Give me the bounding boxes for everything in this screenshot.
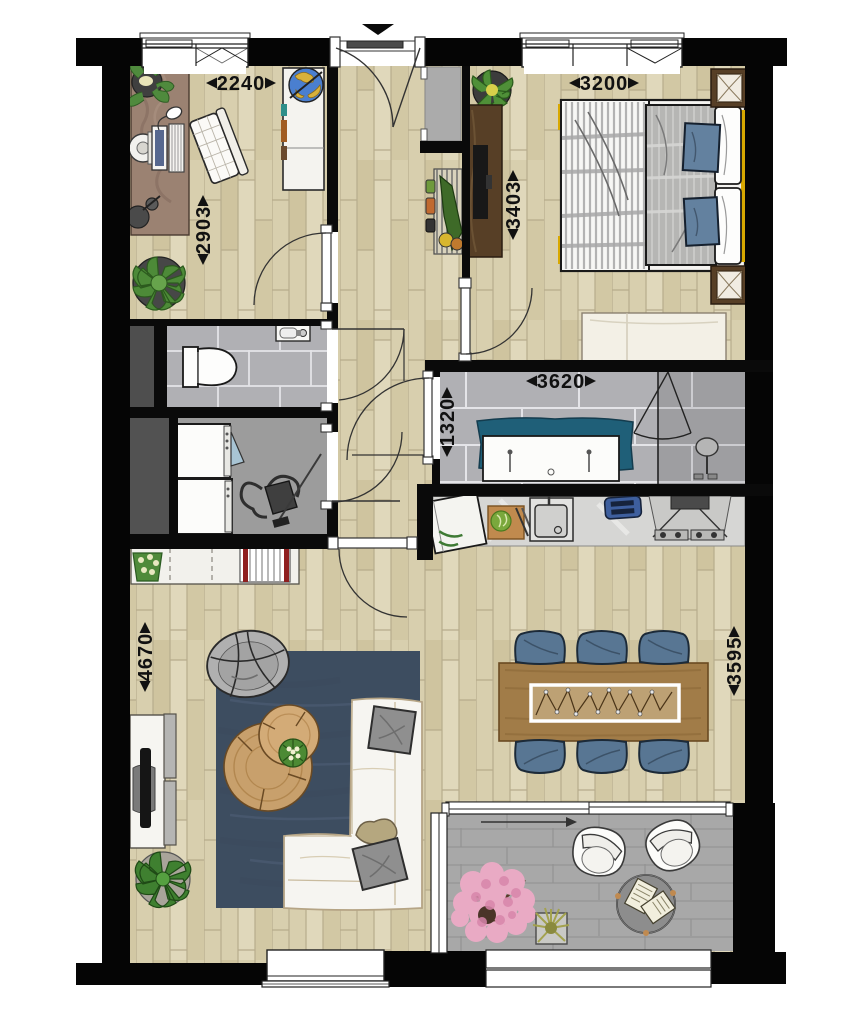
svg-text:3403: 3403 (503, 181, 525, 230)
svg-text:1320: 1320 (437, 398, 459, 447)
svg-text:3620: 3620 (537, 371, 586, 393)
svg-text:3595: 3595 (724, 637, 746, 686)
svg-text:4670: 4670 (135, 633, 157, 682)
svg-text:2240: 2240 (217, 73, 266, 95)
svg-text:3200: 3200 (580, 73, 629, 95)
svg-text:2903: 2903 (193, 206, 215, 255)
